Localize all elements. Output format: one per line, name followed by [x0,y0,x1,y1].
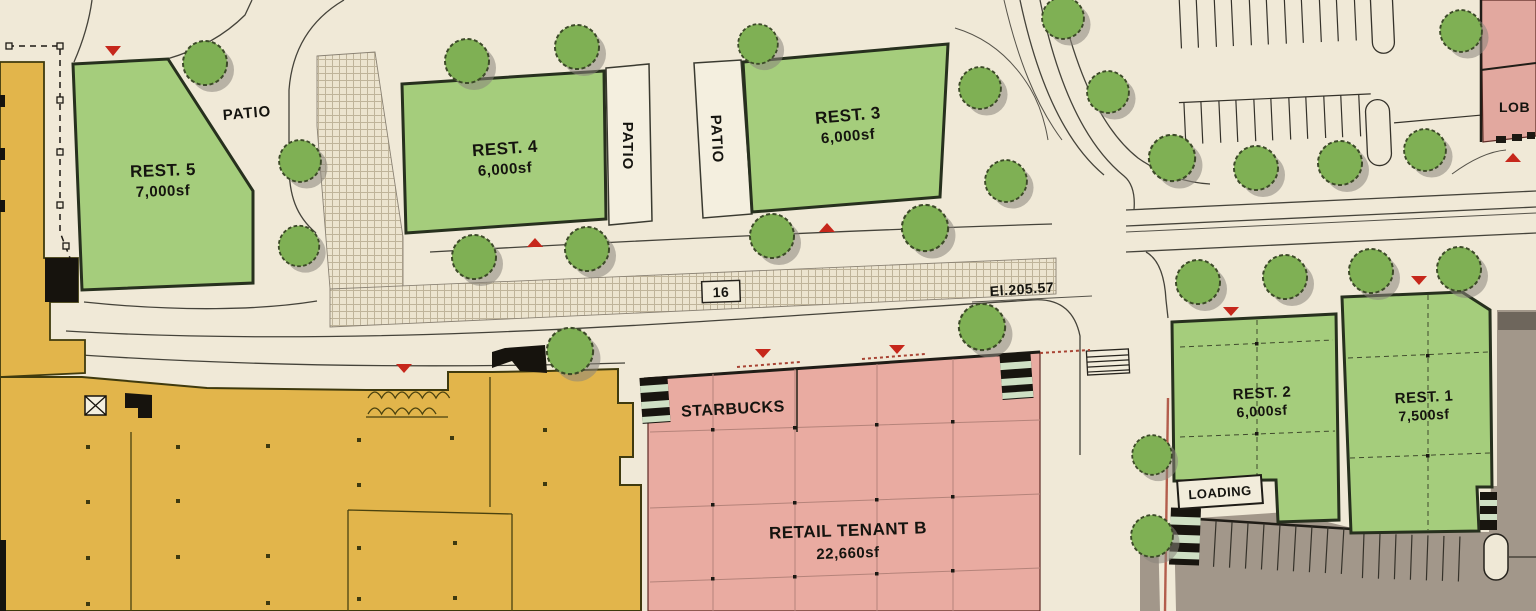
rest2-label: REST. 2 [1232,383,1291,403]
parking-island [1365,99,1392,166]
site-plan: STARBUCKS RETAIL TENANT B 22,660sf [0,0,1536,611]
retail-tenant-b-area: 22,660sf [816,544,880,563]
rest2-area: 6,000sf [1236,402,1288,421]
stair-core-icon [1480,492,1497,530]
stair-core-icon [639,376,670,424]
lobby-building: LOB [1481,0,1536,143]
rest5-label: REST. 5 [130,160,196,181]
parking-island [1370,0,1395,54]
rest3-patio-label: PATIO [707,114,727,163]
lobby-label: LOB [1499,99,1530,115]
rest5-area: 7,000sf [136,182,191,201]
site-plan-photo: STARBUCKS RETAIL TENANT B 22,660sf [0,0,1536,611]
keynote-label: 16 [712,284,729,301]
parking-island [1484,534,1508,580]
stairs-icon [1086,349,1129,375]
retail-tenant-b-building: STARBUCKS RETAIL TENANT B 22,660sf [639,352,1040,611]
stair-core-icon [999,352,1033,400]
loading-zone: LOADING [1177,475,1263,509]
keynote-16: 16 [702,280,741,302]
rest4-patio-label: PATIO [619,122,636,171]
rest1-area: 7,500sf [1398,406,1450,425]
rest1-label: REST. 1 [1394,387,1453,407]
